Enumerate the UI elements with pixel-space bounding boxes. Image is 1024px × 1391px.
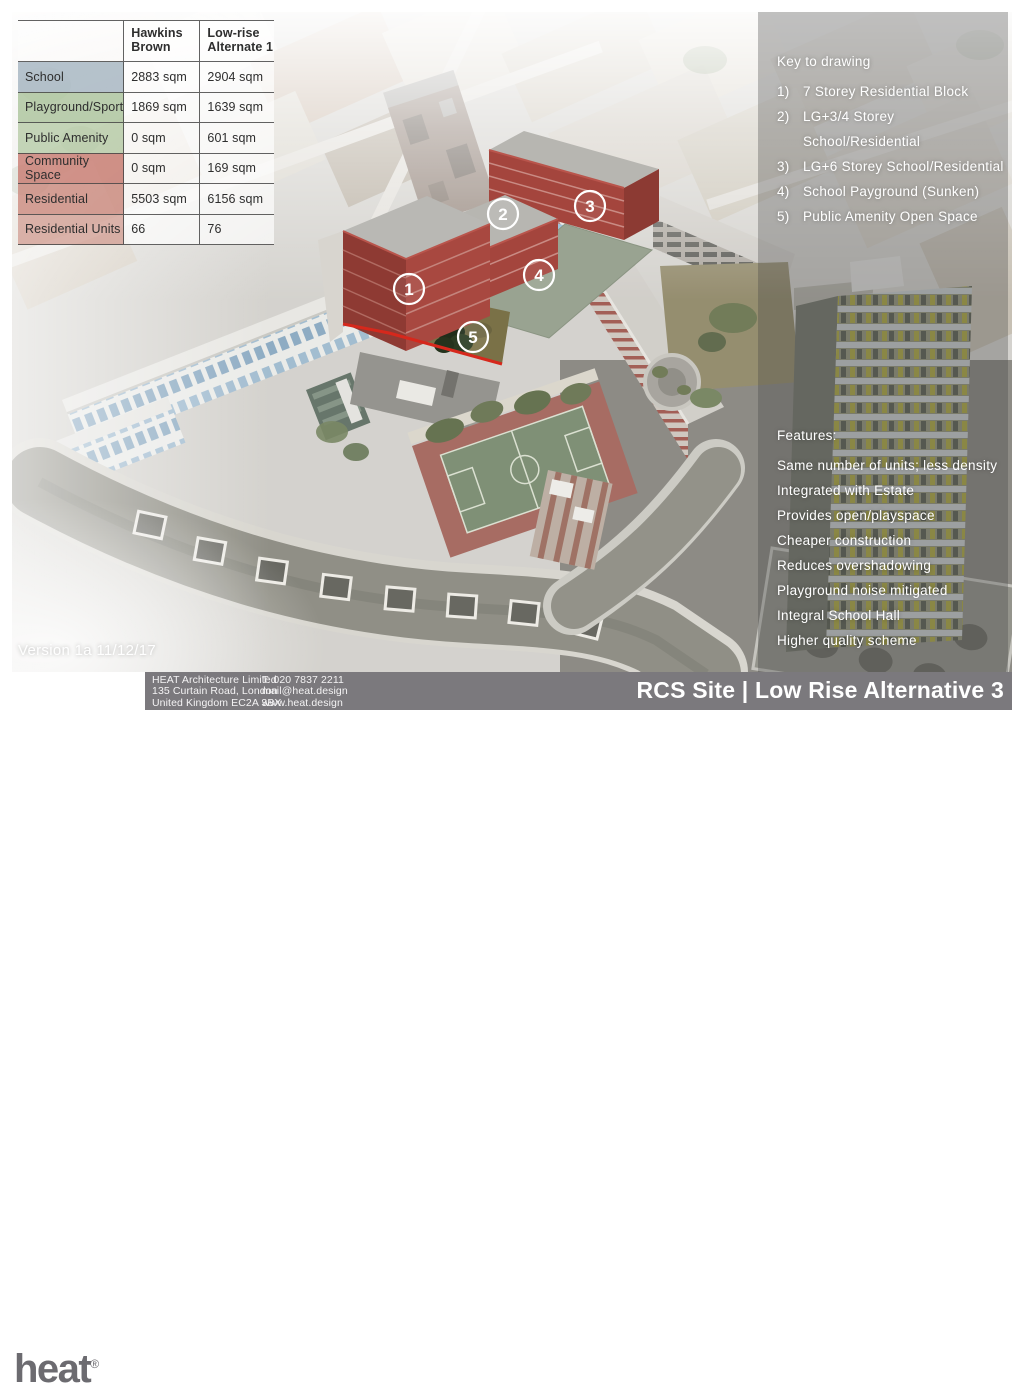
value-hawkins-brown: 0 sqm	[124, 123, 200, 154]
contact-line: www.heat.design	[262, 698, 348, 709]
row-label: Residential Units	[18, 214, 124, 245]
table-row: Playground/Sport1869 sqm1639 sqm	[18, 92, 274, 123]
comparison-table-body: School2883 sqm2904 sqmPlayground/Sport18…	[18, 62, 274, 245]
contact-details: T: 020 7837 2211 mail@heat.design www.he…	[262, 675, 348, 709]
key-item-number: 4)	[777, 179, 803, 204]
table-row: Residential Units6676	[18, 214, 274, 245]
key-item: 2)LG+3/4 Storey School/Residential	[777, 104, 1012, 154]
table-row: Public Amenity0 sqm601 sqm	[18, 123, 274, 154]
key-item: 3)LG+6 Storey School/Residential	[777, 154, 1012, 179]
value-low-rise: 1639 sqm	[200, 92, 274, 123]
feature-item: Integrated with Estate	[777, 478, 1012, 503]
registered-mark: ®	[90, 1357, 99, 1371]
value-low-rise: 2904 sqm	[200, 62, 274, 93]
column-header-low-rise: Low-rise Alternate 1	[200, 21, 274, 62]
table-row: Residential5503 sqm6156 sqm	[18, 184, 274, 215]
row-label: Residential	[18, 184, 124, 215]
key-item-number: 3)	[777, 154, 803, 179]
table-row: Community Space0 sqm169 sqm	[18, 153, 274, 184]
row-label: Public Amenity	[18, 123, 124, 154]
key-title: Key to drawing	[777, 54, 1012, 69]
key-item-number: 1)	[777, 79, 803, 104]
logo-text: heat	[14, 1347, 90, 1391]
row-label: Community Space	[18, 153, 124, 184]
version-label: Version 1a 11/12/17	[18, 642, 156, 659]
key-item: 5)Public Amenity Open Space	[777, 204, 1012, 229]
column-header-hawkins-brown: Hawkins Brown	[124, 21, 200, 62]
svg-text:1: 1	[404, 280, 413, 299]
value-low-rise: 169 sqm	[200, 153, 274, 184]
key-item-label: Public Amenity Open Space	[803, 204, 978, 229]
feature-item: Same number of units; less density	[777, 453, 1012, 478]
key-item-label: School Payground (Sunken)	[803, 179, 979, 204]
row-label: Playground/Sport	[18, 92, 124, 123]
svg-text:4: 4	[534, 266, 544, 285]
table-header-row: Hawkins Brown Low-rise Alternate 1	[18, 21, 274, 62]
massing-marker-3: 3	[575, 191, 605, 221]
svg-text:2: 2	[498, 205, 507, 224]
value-hawkins-brown: 1869 sqm	[124, 92, 200, 123]
feature-item: Cheaper construction	[777, 528, 1012, 553]
feature-item: Reduces overshadowing	[777, 553, 1012, 578]
massing-marker-2: 2	[488, 199, 518, 229]
contact-line: mail@heat.design	[262, 686, 348, 697]
value-low-rise: 601 sqm	[200, 123, 274, 154]
key-item-number: 5)	[777, 204, 803, 229]
table-corner-cell	[18, 21, 124, 62]
features-items: Same number of units; less densityIntegr…	[777, 453, 1012, 653]
key-item-label: 7 Storey Residential Block	[803, 79, 968, 104]
key-item: 1)7 Storey Residential Block	[777, 79, 1012, 104]
svg-text:5: 5	[468, 328, 477, 347]
heat-logo: heat®	[14, 1346, 99, 1387]
value-low-rise: 6156 sqm	[200, 184, 274, 215]
key-item-label: LG+6 Storey School/Residential	[803, 154, 1004, 179]
massing-marker-1: 1	[394, 274, 424, 304]
feature-item: Provides open/playspace	[777, 503, 1012, 528]
table-row: School2883 sqm2904 sqm	[18, 62, 274, 93]
svg-text:3: 3	[585, 197, 594, 216]
feature-item: Integral School Hall	[777, 603, 1012, 628]
key-item-number: 2)	[777, 104, 803, 154]
massing-marker-4: 4	[524, 260, 554, 290]
features-title: Features:	[777, 428, 1012, 443]
massing-marker-5: 5	[458, 322, 488, 352]
row-label: School	[18, 62, 124, 93]
value-hawkins-brown: 2883 sqm	[124, 62, 200, 93]
feature-item: Higher quality scheme	[777, 628, 1012, 653]
footer-bar: HEAT Architecture Limited 135 Curtain Ro…	[145, 672, 1012, 710]
feature-item: Playground noise mitigated	[777, 578, 1012, 603]
key-items: 1)7 Storey Residential Block2)LG+3/4 Sto…	[777, 79, 1012, 229]
value-hawkins-brown: 0 sqm	[124, 153, 200, 184]
value-hawkins-brown: 5503 sqm	[124, 184, 200, 215]
value-hawkins-brown: 66	[124, 214, 200, 245]
key-to-drawing-panel: Key to drawing 1)7 Storey Residential Bl…	[777, 54, 1012, 229]
sheet-title: RCS Site | Low Rise Alternative 3	[636, 672, 1004, 710]
features-panel: Features: Same number of units; less den…	[777, 428, 1012, 653]
comparison-table: Hawkins Brown Low-rise Alternate 1 Schoo…	[18, 20, 274, 245]
key-item-label: LG+3/4 Storey School/Residential	[803, 104, 1012, 154]
key-item: 4)School Payground (Sunken)	[777, 179, 1012, 204]
value-low-rise: 76	[200, 214, 274, 245]
